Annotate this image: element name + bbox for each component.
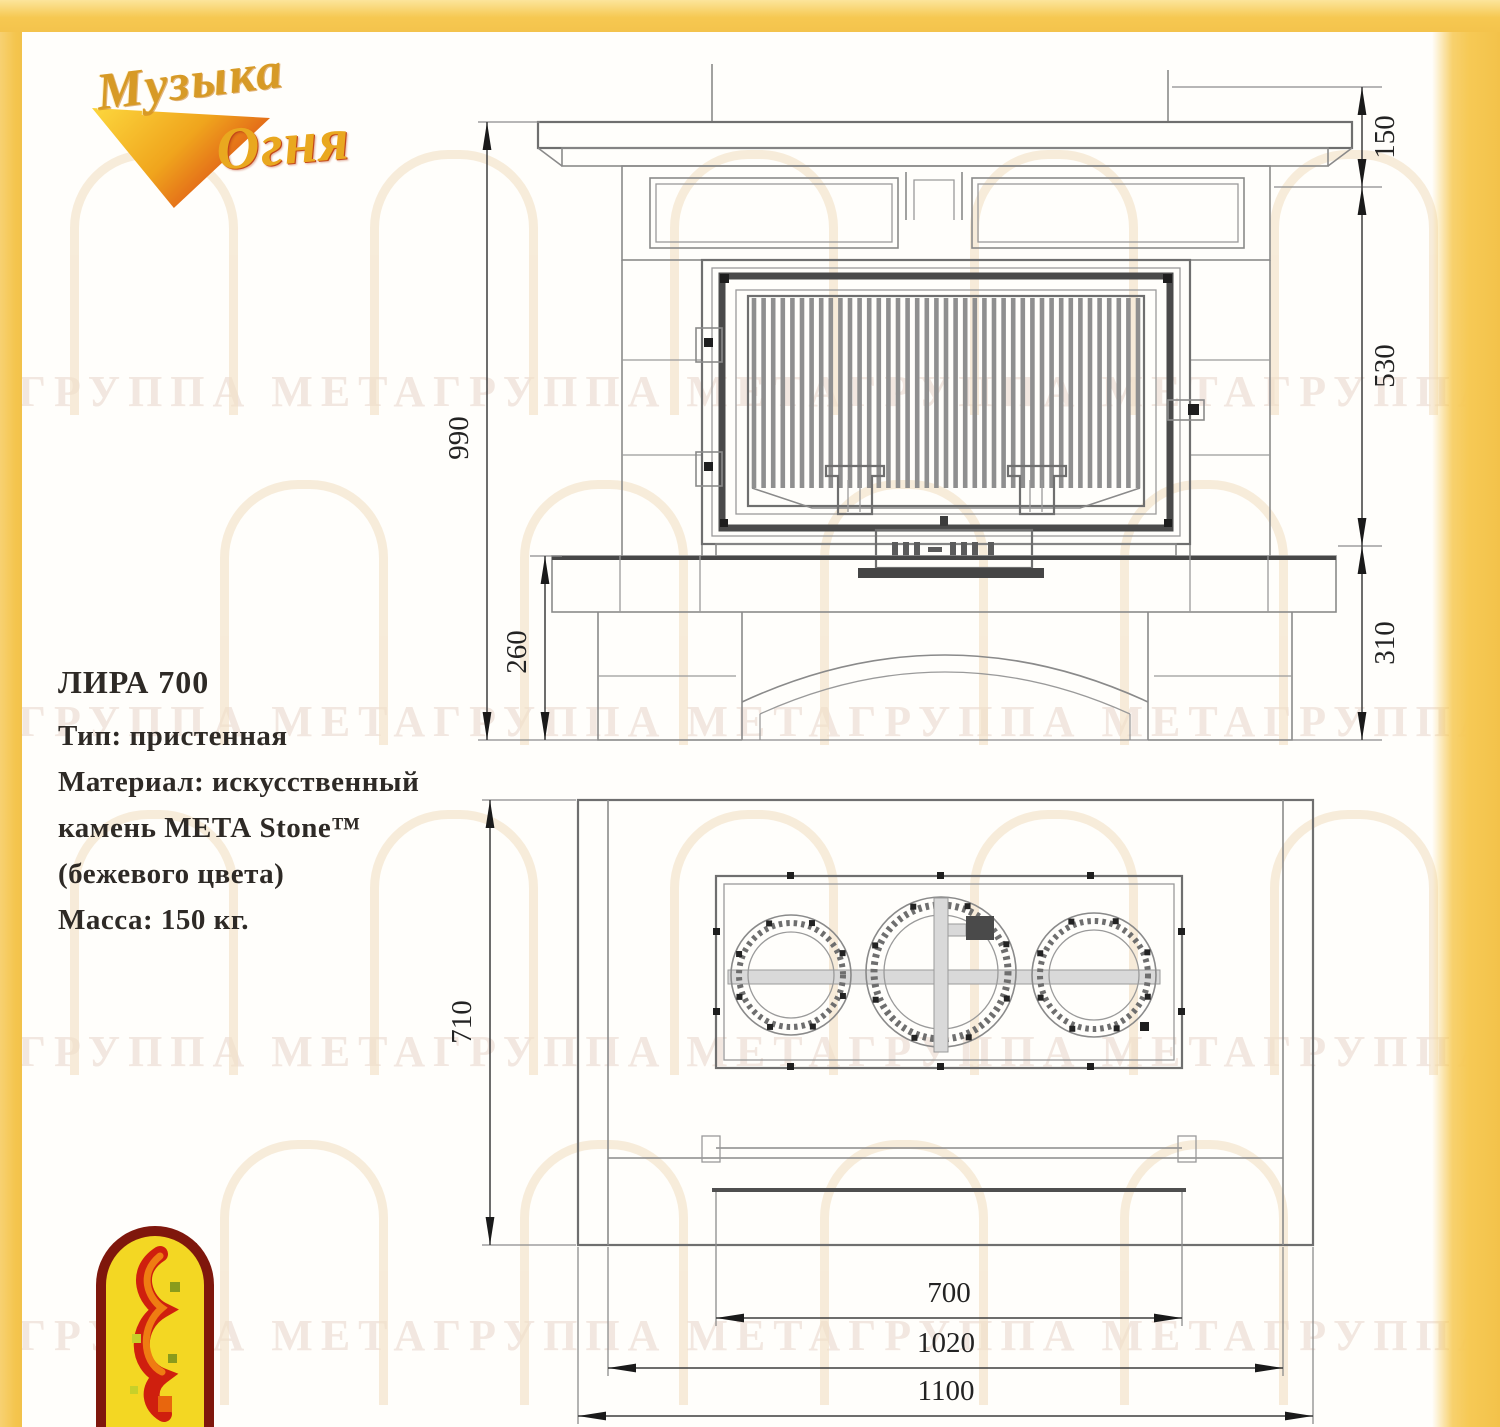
plan-view	[578, 800, 1313, 1245]
dim-700: 700	[716, 1192, 1182, 1326]
dim-260: 260	[501, 556, 562, 740]
right-column	[1190, 260, 1270, 556]
base-with-arch	[598, 612, 1292, 740]
hearth-slab	[552, 556, 1336, 612]
chimney-stub	[712, 64, 1168, 122]
dim-right-chain: 150 530 310	[1172, 87, 1401, 740]
frame-bar-right	[1432, 0, 1500, 1427]
flame-figure-icon	[106, 1236, 204, 1427]
dim-label-310: 310	[1369, 621, 1401, 665]
dim-label-710: 710	[446, 1000, 478, 1044]
brand-word-2: Огня	[213, 104, 352, 184]
brand-word-1: Музыка	[93, 41, 287, 122]
dim-label-150: 150	[1369, 115, 1401, 159]
spec-line: камень МЕТА Stone™	[58, 805, 419, 851]
product-info: ЛИРА 700 Тип: пристенная Материал: искус…	[58, 664, 419, 943]
spec-line: Масса: 150 кг.	[58, 897, 419, 943]
frame-bar-top	[0, 0, 1500, 32]
dim-label-990: 990	[443, 416, 475, 460]
dim-label-700: 700	[927, 1277, 971, 1309]
page: ГРУППА МЕТАГРУППА МЕТАГРУППА МЕТАГРУППА …	[0, 0, 1500, 1427]
front-view	[538, 64, 1352, 740]
dim-label-260: 260	[501, 630, 533, 674]
spec-line: Тип: пристенная	[58, 713, 419, 759]
flue-panel	[713, 872, 1185, 1070]
brand-logo: Музыка Огня	[88, 46, 378, 296]
spec-line: (бежевого цвета)	[58, 851, 419, 897]
arch-inner	[760, 672, 1130, 714]
plan-front-edge	[702, 1136, 1196, 1190]
frieze-band	[622, 166, 1270, 260]
dim-label-1020: 1020	[917, 1327, 975, 1359]
damper-cross-vertical	[934, 898, 948, 1052]
firebox	[696, 260, 1204, 544]
dimensions: 990 260 150 530 310	[443, 87, 1401, 1424]
arch-outer	[742, 655, 1148, 702]
mantel-shelf	[538, 122, 1352, 166]
frame-bar-left	[0, 0, 22, 1427]
dim-710: 710	[446, 800, 576, 1245]
dim-label-530: 530	[1369, 344, 1401, 388]
product-title: ЛИРА 700	[58, 664, 419, 701]
dim-label-1100: 1100	[918, 1375, 975, 1407]
nameplate-band	[716, 530, 1176, 578]
left-column	[622, 260, 702, 556]
door-grille	[754, 298, 1138, 488]
door-hinge-bottom	[696, 452, 722, 486]
door-hinge-top	[696, 328, 722, 362]
spec-line: Материал: искусственный	[58, 759, 419, 805]
bottom-left-emblem	[96, 1226, 214, 1427]
damper-handle	[966, 916, 994, 940]
